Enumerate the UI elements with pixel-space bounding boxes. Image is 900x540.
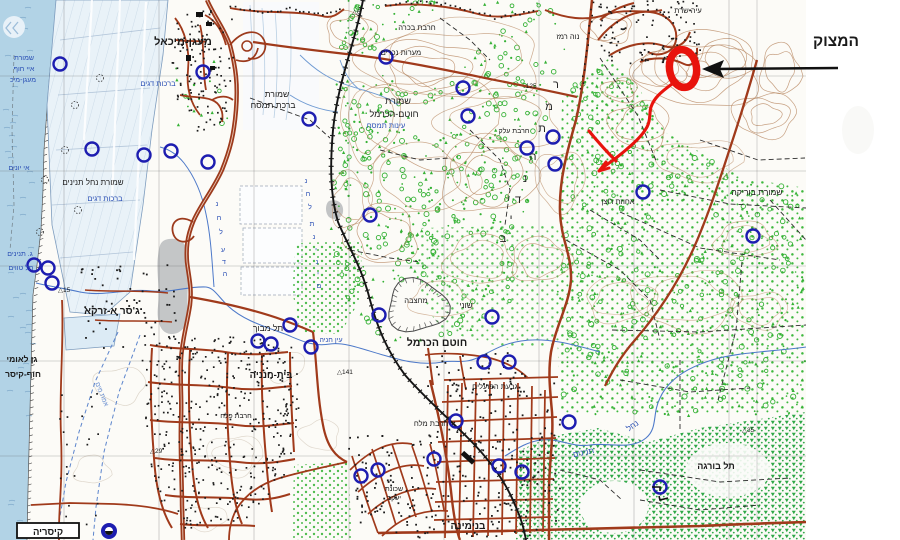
svg-text:שכונת: שכונת (385, 486, 403, 493)
svg-text:נ: נ (523, 173, 527, 185)
svg-text:קיסריה: קיסריה (33, 527, 63, 538)
svg-text:ה: ה (530, 151, 537, 163)
svg-text:מעגן-מיכ: מעגן-מיכ (10, 77, 36, 84)
svg-text:ד: ד (515, 194, 521, 206)
svg-text:ת: ת (538, 123, 546, 135)
svg-text:.125: .125 (524, 83, 537, 90)
svg-text:חרבת מלח: חרבת מלח (414, 419, 448, 428)
svg-text:ע: ע (221, 247, 225, 254)
svg-text:יעקב: יעקב (387, 495, 401, 502)
svg-text:נ: נ (313, 234, 316, 241)
svg-text:מעגן-מיכאל: מעגן-מיכאל (154, 35, 212, 48)
svg-text:גבעת הפועלים: גבעת הפועלים (472, 382, 518, 391)
svg-text:מחצבה: מחצבה (404, 296, 427, 305)
svg-text:עין חניה: עין חניה (319, 337, 342, 344)
svg-text:△15: △15 (58, 287, 71, 294)
svg-text:חוף-קיסר: חוף-קיסר (5, 369, 41, 379)
svg-text:ח: ח (306, 191, 311, 198)
svg-text:אי יונים: אי יונים (9, 165, 31, 172)
svg-text:שמורת נחל תנינים: שמורת נחל תנינים (62, 178, 123, 187)
svg-text:ב: ב (500, 233, 507, 245)
svg-text:תל מבוך: תל מבוך (253, 323, 283, 333)
svg-text:ד: ד (222, 259, 226, 266)
svg-text:איי חוף: איי חוף (14, 66, 35, 73)
svg-text:מ: מ (545, 101, 553, 113)
svg-text:בנימינה: בנימינה (451, 521, 486, 532)
svg-text:חרבת עלק: חרבת עלק (499, 127, 530, 135)
svg-text:י: י (315, 247, 317, 254)
svg-text:נ: נ (216, 201, 219, 208)
svg-text:גן לאומי: גן לאומי (7, 354, 38, 364)
svg-text:ח: ח (217, 215, 222, 222)
svg-text:שמורת: שמורת (385, 96, 411, 106)
svg-text:ג'סר א-זרקא: ג'סר א-זרקא (84, 306, 140, 317)
svg-text:ה: ה (223, 271, 227, 278)
svg-text:ברכות דגים: ברכות דגים (140, 79, 176, 88)
svg-text:שמורת: שמורת (265, 89, 289, 99)
svg-text:נוה רמז: נוה רמז (556, 32, 579, 41)
svg-text:חוטם הכרמל: חוטם הכרמל (407, 337, 467, 349)
svg-text:ר: ר (553, 79, 559, 91)
svg-text:ג. תנינים: ג. תנינים (7, 251, 32, 258)
svg-text:שמורת: שמורת (14, 55, 34, 62)
svg-text:ת: ת (310, 221, 315, 228)
svg-text:△35: △35 (742, 427, 755, 434)
svg-text:שוני: שוני (459, 301, 472, 310)
svg-text:חרבת בכרה: חרבת בכרה (398, 23, 435, 32)
svg-text:ל: ל (219, 228, 223, 236)
svg-text:△29: △29 (150, 448, 163, 455)
svg-text:אחוזת רוצן: אחוזת רוצן (601, 197, 634, 206)
svg-text:חרבת פלח: חרבת פלח (220, 412, 252, 420)
svg-text:תל בורגה: תל בורגה (697, 461, 735, 471)
svg-text:נ: נ (316, 259, 319, 266)
svg-text:בית-חנניה: בית-חנניה (250, 370, 293, 381)
svg-text:מערות נכרים: מערות נכרים (381, 48, 421, 57)
svg-text:△141: △141 (337, 369, 353, 376)
svg-text:תל טווים: תל טווים (9, 264, 34, 272)
svg-text:חוטם-הכרמל: חוטם-הכרמל (369, 109, 418, 119)
svg-text:ל: ל (308, 203, 312, 211)
svg-text:י: י (317, 271, 319, 278)
svg-text:ברכות דגים: ברכות דגים (87, 194, 123, 203)
svg-text:ם: ם (317, 283, 322, 290)
svg-text:שמורת בוריקה: שמורת בוריקה (731, 187, 782, 197)
svg-text:המצוק: המצוק (813, 33, 859, 50)
svg-text:עינות תמסח: עינות תמסח (367, 121, 406, 130)
svg-text:י: י (510, 213, 513, 225)
svg-text:נ: נ (305, 178, 308, 185)
svg-text:△6: △6 (352, 9, 361, 16)
svg-text:עיה שרת: עיה שרת (674, 6, 701, 15)
svg-text:ברכת תמסח: ברכת תמסח (251, 100, 296, 110)
